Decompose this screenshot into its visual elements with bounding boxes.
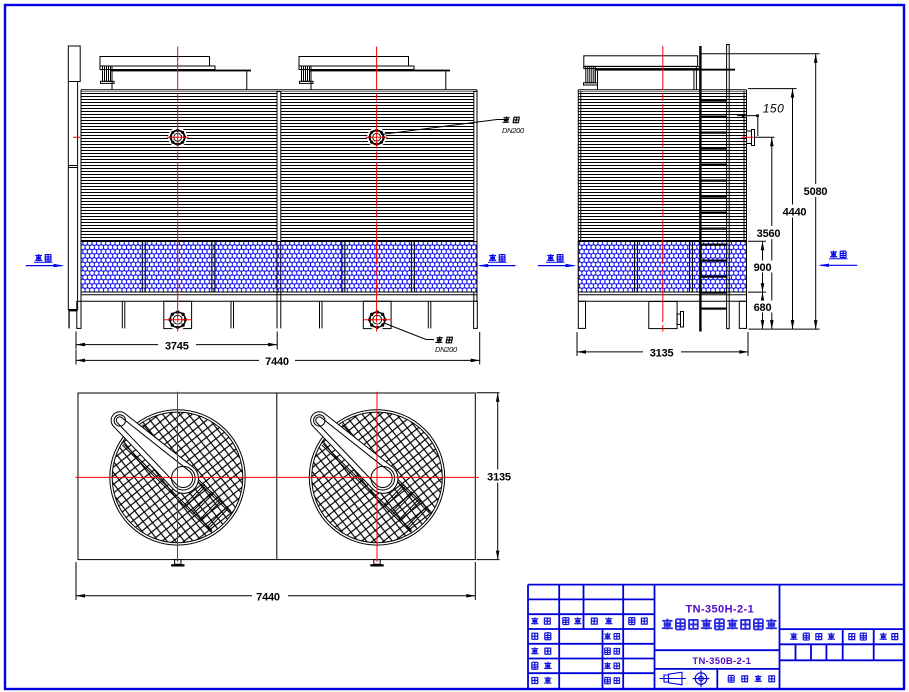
svg-text:900: 900 (754, 262, 772, 274)
svg-text:TN-350B-2-1: TN-350B-2-1 (692, 656, 751, 667)
svg-text:7440: 7440 (256, 592, 280, 604)
svg-text:7440: 7440 (265, 356, 289, 368)
svg-text:DN200: DN200 (502, 126, 525, 135)
svg-text:4440: 4440 (783, 207, 807, 219)
svg-text:3560: 3560 (757, 228, 781, 240)
svg-text:3745: 3745 (165, 340, 189, 352)
svg-text:3135: 3135 (650, 348, 674, 360)
svg-text:TN-350H-2-1: TN-350H-2-1 (686, 604, 755, 616)
svg-text:150: 150 (763, 102, 785, 116)
svg-text:680: 680 (754, 302, 772, 314)
svg-text:5080: 5080 (804, 186, 828, 198)
svg-text:DN200: DN200 (435, 345, 458, 354)
svg-text:3135: 3135 (487, 472, 511, 484)
